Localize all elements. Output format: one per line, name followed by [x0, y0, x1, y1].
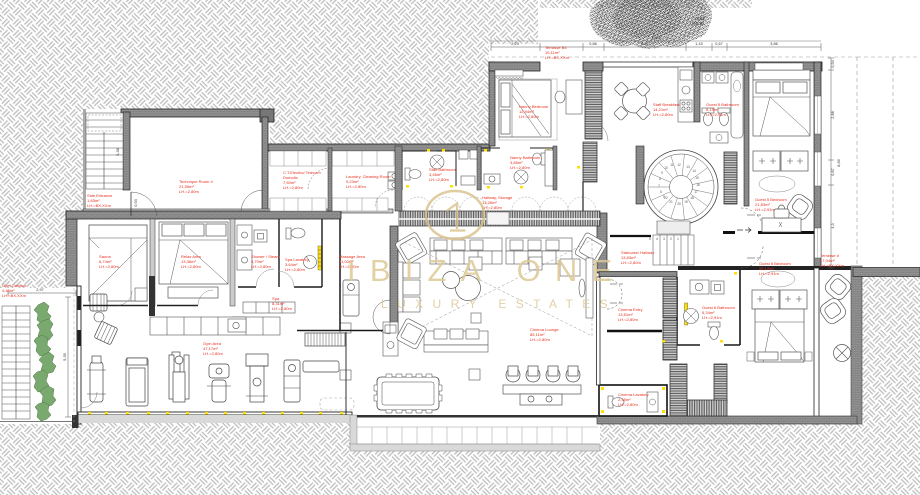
svg-text:12: 12 [677, 163, 681, 167]
svg-text:LH.=2,80m: LH.=2,80m [519, 114, 540, 119]
svg-text:4,3: 4,3 [831, 223, 835, 228]
svg-text:2: 2 [670, 237, 672, 241]
svg-text:LH.=2,80m: LH.=2,80m [283, 185, 304, 190]
svg-text:LH.=BX,XXm: LH.=BX,XXm [87, 203, 112, 208]
svg-text:15: 15 [695, 176, 699, 180]
svg-text:0,54: 0,54 [831, 60, 835, 67]
svg-text:LH.=2,80m: LH.=2,80m [618, 402, 639, 407]
svg-text:LH.=2,80m: LH.=2,80m [203, 351, 224, 356]
svg-text:2,97: 2,97 [36, 288, 43, 292]
svg-text:5,35: 5,35 [63, 353, 67, 360]
svg-text:9: 9 [661, 171, 663, 175]
svg-text:1,43: 1,43 [695, 42, 702, 46]
svg-text:LH.=2,80m: LH.=2,80m [251, 264, 272, 269]
svg-text:1: 1 [677, 237, 679, 241]
svg-text:LH.=2,80m: LH.=2,80m [272, 306, 293, 311]
svg-text:(69,30: (69,30 [692, 21, 705, 26]
svg-text:10: 10 [664, 166, 668, 170]
svg-text:LH.=2,80m: LH.=2,80m [99, 264, 120, 269]
svg-text:0,67: 0,67 [715, 42, 722, 46]
svg-text:LH.=2,80m: LH.=2,80m [653, 112, 674, 117]
svg-text:LH.=2,80m: LH.=2,80m [346, 184, 367, 189]
svg-text:0,86: 0,86 [589, 42, 596, 46]
svg-text:5: 5 [663, 195, 665, 199]
svg-text:LH.=2,80m: LH.=2,80m [181, 264, 202, 269]
svg-text:LH.=2,80m: LH.=2,80m [482, 205, 503, 210]
svg-text:8: 8 [659, 177, 661, 181]
svg-text:LH.=BX,XXm: LH.=BX,XXm [820, 263, 845, 268]
svg-text:LH.=2,80m: LH.=2,80m [429, 177, 450, 182]
svg-text:6: 6 [660, 190, 662, 194]
svg-text:11: 11 [670, 163, 674, 167]
svg-text:3,86: 3,86 [770, 42, 777, 46]
svg-text:LH.=2,80m: LH.=2,80m [285, 267, 306, 272]
svg-text:19: 19 [684, 200, 688, 204]
svg-text:LH.=BX,XXm: LH.=BX,XXm [545, 55, 570, 60]
svg-text:4: 4 [656, 237, 658, 241]
svg-text:17: 17 [694, 190, 698, 194]
svg-text:18: 18 [690, 196, 694, 200]
svg-text:16: 16 [696, 183, 700, 187]
svg-text:2,88: 2,88 [831, 111, 835, 118]
svg-text:3: 3 [663, 237, 665, 241]
svg-text:14: 14 [692, 169, 696, 173]
svg-text:LH.=2,91m: LH.=2,91m [702, 315, 723, 320]
svg-text:LUXURY ESTATES: LUXURY ESTATES [381, 297, 617, 311]
svg-text:LH.=2,80m: LH.=2,80m [618, 317, 639, 322]
svg-text:7: 7 [658, 184, 660, 188]
svg-text:0,93: 0,93 [134, 199, 138, 206]
svg-text:20: 20 [677, 202, 681, 206]
svg-text:0,87: 0,87 [831, 168, 835, 175]
svg-text:LH.=2,80m: LH.=2,80m [179, 189, 200, 194]
svg-text:LH.=BX,XXm: LH.=BX,XXm [2, 293, 27, 298]
svg-text:5,36: 5,36 [116, 148, 120, 155]
svg-text:LH.=2,91m: LH.=2,91m [759, 271, 780, 276]
svg-text:13: 13 [686, 165, 690, 169]
svg-text:8,69: 8,69 [837, 159, 841, 166]
svg-text:5: 5 [649, 237, 651, 241]
svg-text:IBIZA ONE: IBIZA ONE [347, 253, 626, 288]
svg-text:LH.=2,80m: LH.=2,80m [530, 337, 551, 342]
svg-text:2,23: 2,23 [511, 42, 518, 46]
svg-text:21: 21 [669, 200, 673, 204]
svg-text:LH.=2,91m: LH.=2,91m [706, 112, 727, 117]
svg-text:LH.=2,91m: LH.=2,91m [755, 207, 776, 212]
svg-text:LH.=2,80m: LH.=2,80m [510, 165, 531, 170]
